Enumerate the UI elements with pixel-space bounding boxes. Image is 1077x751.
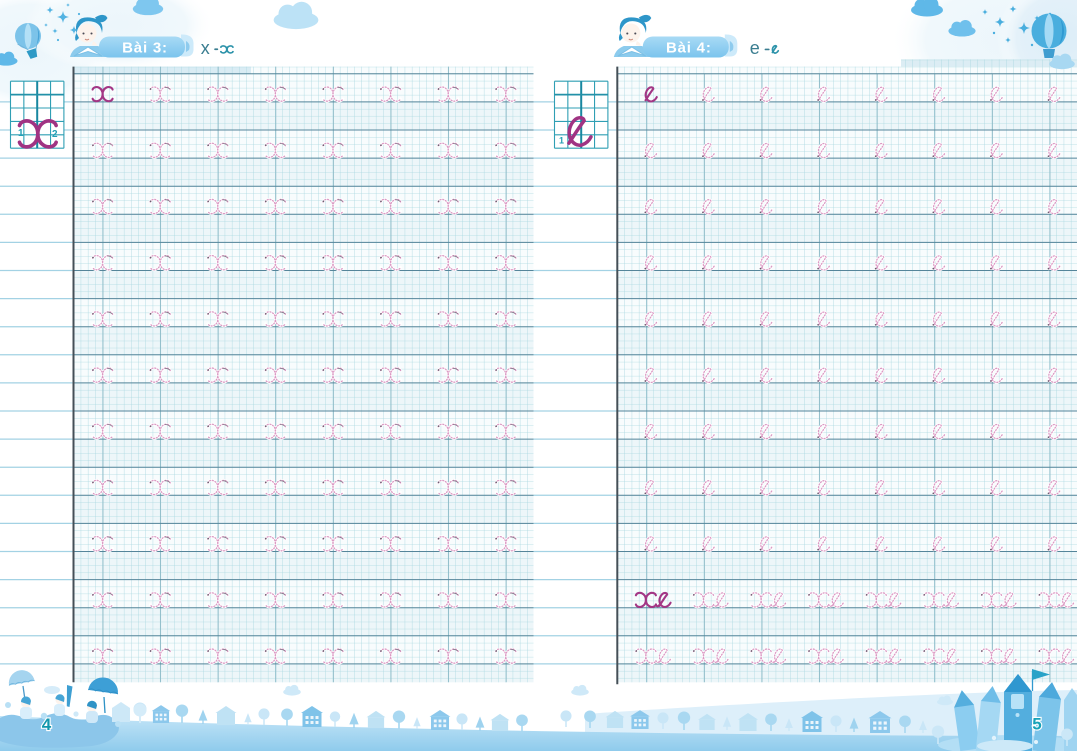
svg-text:1: 1 [559, 136, 564, 146]
svg-text:Bài 3:: Bài 3: [122, 40, 168, 57]
svg-text:e: e [750, 38, 760, 58]
svg-text:2: 2 [52, 129, 58, 140]
svg-text:5: 5 [1032, 715, 1041, 734]
svg-text:Bài 4:: Bài 4: [666, 40, 712, 57]
svg-text:x: x [201, 38, 210, 58]
svg-text:4: 4 [42, 715, 52, 734]
svg-text:1: 1 [18, 128, 24, 139]
